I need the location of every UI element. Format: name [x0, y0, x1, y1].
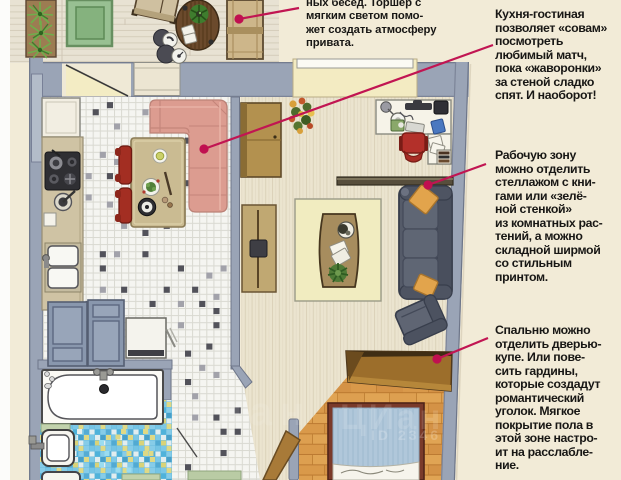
- svg-text:Циан: Циан: [180, 390, 312, 434]
- svg-text:ID 2346: ID 2346: [371, 427, 441, 443]
